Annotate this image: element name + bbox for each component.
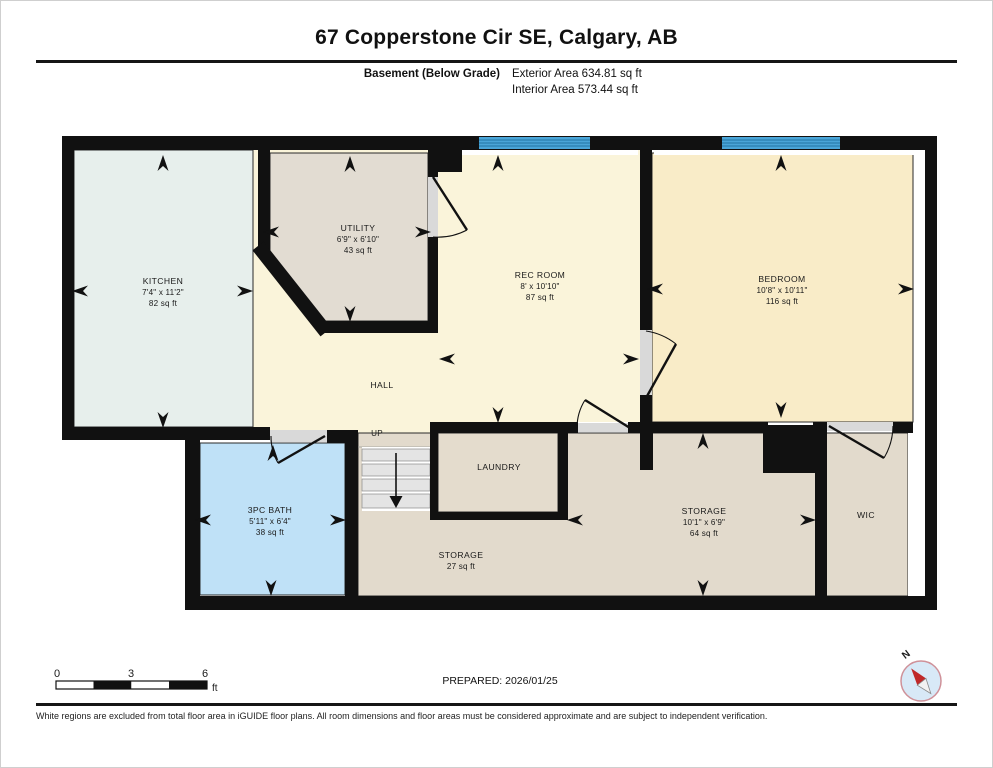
prepared-date: PREPARED: 2026/01/25	[380, 675, 620, 687]
stairs-up-label: UP	[371, 429, 383, 438]
storage-small-area: 27 sq ft	[447, 562, 476, 571]
scale-tick-0: 0	[54, 668, 60, 680]
bath-area: 38 sq ft	[256, 528, 285, 537]
footer-divider	[36, 703, 957, 706]
storage-large-label: STORAGE	[682, 506, 727, 516]
bedroom-area: 116 sq ft	[766, 297, 799, 306]
storage-small-label: STORAGE	[439, 550, 484, 560]
bath-label: 3PC BATH	[248, 505, 293, 515]
window-bedroom	[722, 137, 840, 149]
hall-floor-ext1	[253, 422, 430, 430]
chimney-block	[763, 425, 817, 473]
scale-bar: 0 3 6 ft	[54, 668, 218, 694]
room-laundry-floor	[438, 433, 558, 512]
utility-dims: 6'9" x 6'10"	[337, 235, 379, 244]
storage-large-area: 64 sq ft	[690, 529, 719, 538]
kitchen-area: 82 sq ft	[149, 299, 178, 308]
scale-tick-6: 6	[202, 668, 208, 680]
bedroom-dims: 10'8" x 10'11"	[756, 286, 807, 295]
hall-label: HALL	[370, 380, 393, 390]
floor-plan-canvas: KITCHEN 7'4" x 11'2" 82 sq ft UTILITY 6'…	[0, 0, 993, 768]
scale-unit: ft	[212, 683, 218, 694]
kitchen-dims: 7'4" x 11'2"	[142, 288, 184, 297]
utility-label: UTILITY	[341, 223, 376, 233]
laundry-label: LAUNDRY	[477, 462, 521, 472]
bedroom-label: BEDROOM	[758, 274, 805, 284]
rec-room-label: REC ROOM	[515, 270, 565, 280]
storage-large-dims: 10'1" x 6'9"	[683, 518, 725, 527]
scale-tick-3: 3	[128, 668, 134, 680]
excluded-strip-right	[908, 430, 925, 596]
kitchen-label: KITCHEN	[143, 276, 184, 286]
wic-label: WIC	[857, 510, 875, 520]
compass: N	[900, 648, 941, 701]
rec-room-area: 87 sq ft	[526, 293, 555, 302]
bath-dims: 5'11" x 6'4"	[249, 517, 291, 526]
staircase	[362, 447, 430, 511]
window-rec-room	[479, 137, 590, 149]
utility-area: 43 sq ft	[344, 246, 373, 255]
disclaimer-text: White regions are excluded from total fl…	[36, 711, 966, 721]
compass-north-label: N	[900, 648, 912, 661]
rec-room-dims: 8' x 10'10"	[520, 282, 559, 291]
floor-plan-page: { "header": { "title": "67 Copperstone C…	[0, 0, 993, 768]
